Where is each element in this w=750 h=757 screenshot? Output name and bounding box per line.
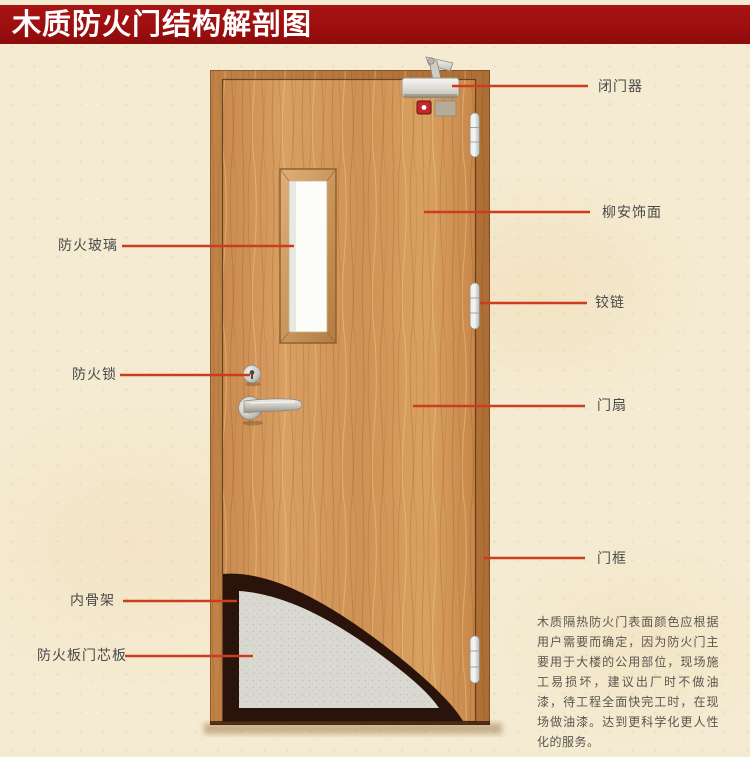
alarm-indicator-graphic [417, 101, 431, 114]
label-inner-frame: 内骨架 [70, 593, 115, 609]
label-door-leaf: 门扇 [597, 398, 627, 414]
label-door-closer: 闭门器 [598, 79, 643, 95]
hinge-bottom-graphic [470, 636, 480, 683]
label-fire-board-core: 防火板门芯板 [37, 648, 127, 664]
description-text: 木质隔热防火门表面颜色应根据用户需要而确定，因为防火门主要用于大楼的公用部位，现… [537, 612, 719, 752]
fire-door-infographic: 木质防火门结构解剖图 [0, 0, 750, 757]
label-door-frame: 门框 [597, 551, 627, 567]
hinge-top-graphic [470, 113, 480, 157]
hinge-middle-graphic [470, 283, 480, 329]
label-lauan-veneer: 柳安饰面 [602, 205, 662, 221]
label-fire-glass: 防火玻璃 [58, 238, 118, 254]
label-hinge: 铰链 [595, 295, 625, 311]
closer-bracket-graphic [435, 101, 456, 116]
label-fire-lock: 防火锁 [72, 367, 117, 383]
glass-window-graphic [280, 169, 336, 343]
